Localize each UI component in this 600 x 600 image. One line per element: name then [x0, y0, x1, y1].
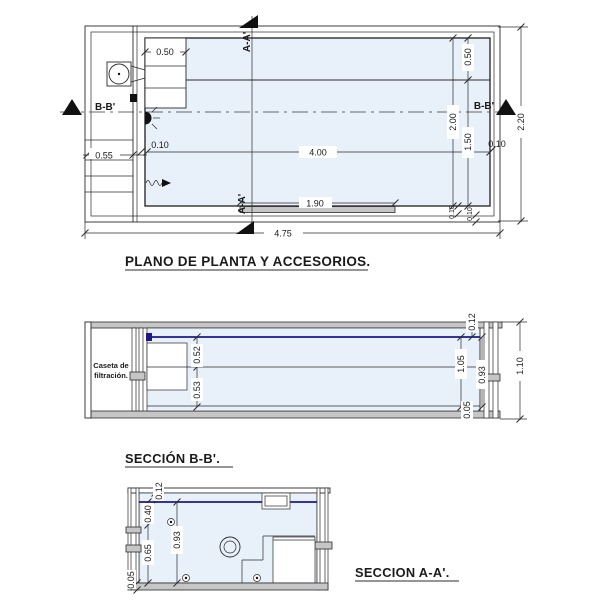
- bb-dim-step-upper: 0.52: [192, 346, 202, 364]
- plan-title: PLANO DE PLANTA Y ACCESORIOS.: [125, 254, 370, 269]
- aa-bottom-label: A-A': [237, 194, 248, 214]
- dim-total-length: 4.75: [274, 229, 292, 239]
- exterior-steps: [85, 140, 133, 192]
- bb-dim-freeboard: 0.12: [467, 313, 477, 331]
- dim-stair-width: 0.50: [156, 47, 174, 57]
- bb-dim-step-lower: 0.53: [192, 381, 202, 399]
- dim-inner-length: 4.00: [309, 148, 327, 158]
- aa-top-arrow-icon: [239, 15, 258, 28]
- bb-skimmer-inlet: [146, 333, 152, 341]
- pool-basin: [145, 38, 490, 206]
- aa-dim-floor-layer: 0.05: [126, 571, 136, 589]
- section-bb-title: SECCIÓN B-B'.: [125, 451, 220, 466]
- aa-floor-slab: [131, 583, 328, 590]
- bb-left-wall: [85, 322, 91, 418]
- section-bb-view: 0.52 0.53 0.12 1.05 0.93 0.05 1.10 Caset…: [85, 312, 527, 467]
- dim-wall-right: 0.10: [488, 139, 506, 149]
- bb-caseta-wall: [130, 328, 145, 411]
- pool-technical-drawing: 0.50 0.55 0.10 4.00 1.90 4.75 0.50 2.00 …: [0, 0, 600, 600]
- aa-dim-lower-step: 0.65: [143, 544, 153, 562]
- caseta-label-line1: Caseta de: [93, 361, 128, 370]
- dim-total-width: 2.20: [516, 113, 526, 131]
- aa-dim-inner-depth: 0.93: [172, 531, 182, 549]
- bb-dim-total-depth: 1.10: [515, 357, 525, 375]
- dim-bench-length: 1.90: [306, 199, 324, 209]
- pump-icon: [107, 62, 145, 102]
- bb-right-label: B-B': [474, 101, 494, 112]
- dim-caseta-width: 0.55: [95, 151, 113, 161]
- bb-right-arrow-icon: [496, 99, 516, 115]
- section-aa-view: 0.12 0.40 0.93 0.65 0.05 SECCION A-A'.: [125, 482, 459, 594]
- dim-main-width: 1.50: [463, 133, 473, 151]
- bb-left-arrow-icon: [62, 99, 82, 115]
- dim-wall-left: 0.10: [151, 140, 169, 150]
- bb-dim-inner-depth: 0.93: [477, 366, 487, 384]
- aa-bottom-arrow-icon: [236, 221, 254, 234]
- aa-top-label: A-A': [242, 32, 253, 52]
- aa-skimmer-box: [262, 493, 290, 509]
- dim-inner-width: 2.00: [448, 113, 458, 131]
- plan-view: 0.50 0.55 0.10 4.00 1.90 4.75 0.50 2.00 …: [60, 15, 528, 270]
- bb-floor-slab: [88, 411, 500, 418]
- dim-wall-bottom-b: 0.10: [467, 207, 474, 221]
- dim-bench-width: 0.50: [463, 48, 473, 66]
- aa-dim-upper-step: 0.40: [143, 505, 153, 523]
- drawing-sheet: 0.50 0.55 0.10 4.00 1.90 4.75 0.50 2.00 …: [0, 0, 600, 600]
- bb-dim-floor-layer: 0.05: [462, 401, 472, 419]
- aa-dim-freeboard: 0.12: [154, 482, 164, 500]
- aa-right-wall: [315, 488, 332, 590]
- bb-left-label: B-B': [95, 102, 115, 113]
- section-aa-title: SECCION A-A'.: [355, 565, 450, 580]
- bb-dim-water-depth: 1.05: [456, 355, 466, 373]
- dim-wall-bottom-a: 0.10: [449, 205, 456, 219]
- caseta-label-line2: filtración.: [94, 371, 128, 380]
- bb-top-coping: [85, 322, 502, 328]
